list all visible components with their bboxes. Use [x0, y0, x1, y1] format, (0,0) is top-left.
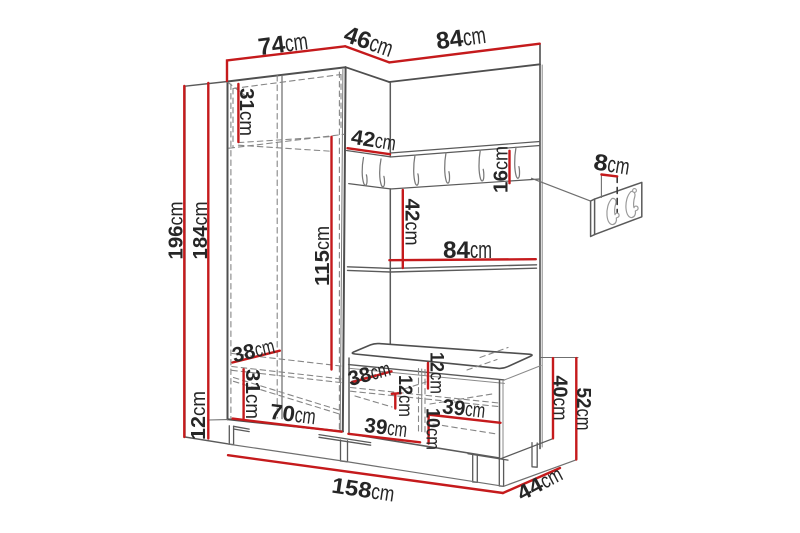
svg-text:31cm: 31cm — [235, 88, 258, 136]
svg-text:196cm: 196cm — [164, 202, 187, 260]
svg-text:84cm: 84cm — [443, 237, 492, 264]
svg-text:8cm: 8cm — [592, 148, 632, 179]
svg-text:184cm: 184cm — [189, 202, 212, 260]
svg-text:52cm: 52cm — [572, 388, 594, 431]
svg-text:12cm: 12cm — [394, 375, 416, 417]
svg-text:16cm: 16cm — [490, 146, 513, 193]
svg-text:115cm: 115cm — [311, 226, 334, 286]
svg-text:40cm: 40cm — [549, 376, 571, 421]
svg-text:12cm: 12cm — [187, 391, 210, 440]
svg-text:42cm: 42cm — [401, 199, 424, 246]
svg-text:39cm: 39cm — [441, 395, 486, 423]
svg-text:31cm: 31cm — [241, 369, 264, 419]
svg-text:12cm: 12cm — [426, 352, 448, 394]
svg-text:10cm: 10cm — [422, 408, 444, 450]
